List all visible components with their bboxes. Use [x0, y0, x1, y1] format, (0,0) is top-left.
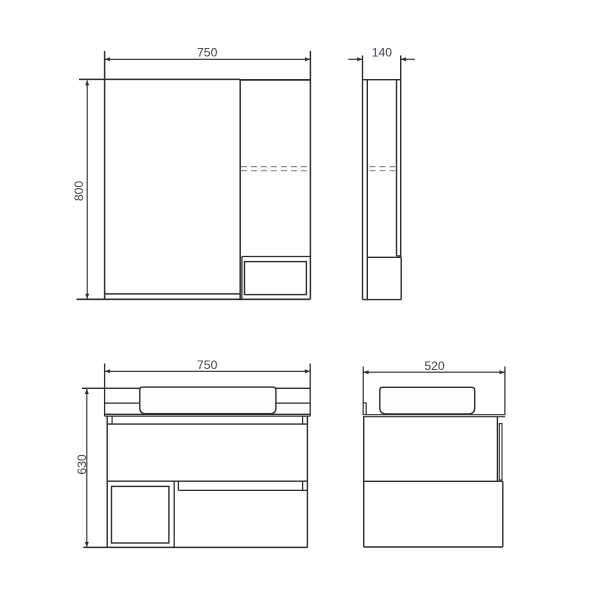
- svg-text:750: 750: [197, 45, 218, 59]
- svg-text:520: 520: [424, 359, 445, 373]
- svg-text:630: 630: [75, 454, 89, 475]
- svg-text:140: 140: [372, 46, 393, 60]
- svg-text:800: 800: [72, 181, 86, 202]
- svg-text:750: 750: [197, 358, 218, 372]
